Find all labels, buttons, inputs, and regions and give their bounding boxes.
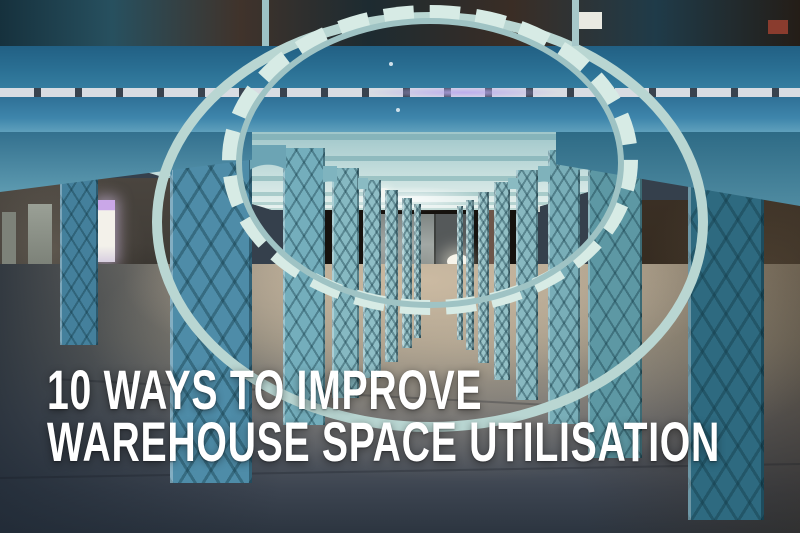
title-line-2: WAREHOUSE SPACE UTILISATION (47, 416, 787, 468)
page-title: 10 WAYS TO IMPROVE WAREHOUSE SPACE UTILI… (47, 364, 787, 468)
roof-post (262, 0, 269, 46)
roof-arch-inner (236, 18, 624, 308)
title-line-1: 10 WAYS TO IMPROVE (47, 364, 787, 416)
white-sign (576, 12, 602, 29)
roof-post (572, 0, 579, 46)
roof-zone (0, 0, 800, 46)
brick-patch (768, 20, 788, 34)
hero-image: BFA 10 WAYS TO IMPROVE WAREHOUSE SPACE U… (0, 0, 800, 533)
